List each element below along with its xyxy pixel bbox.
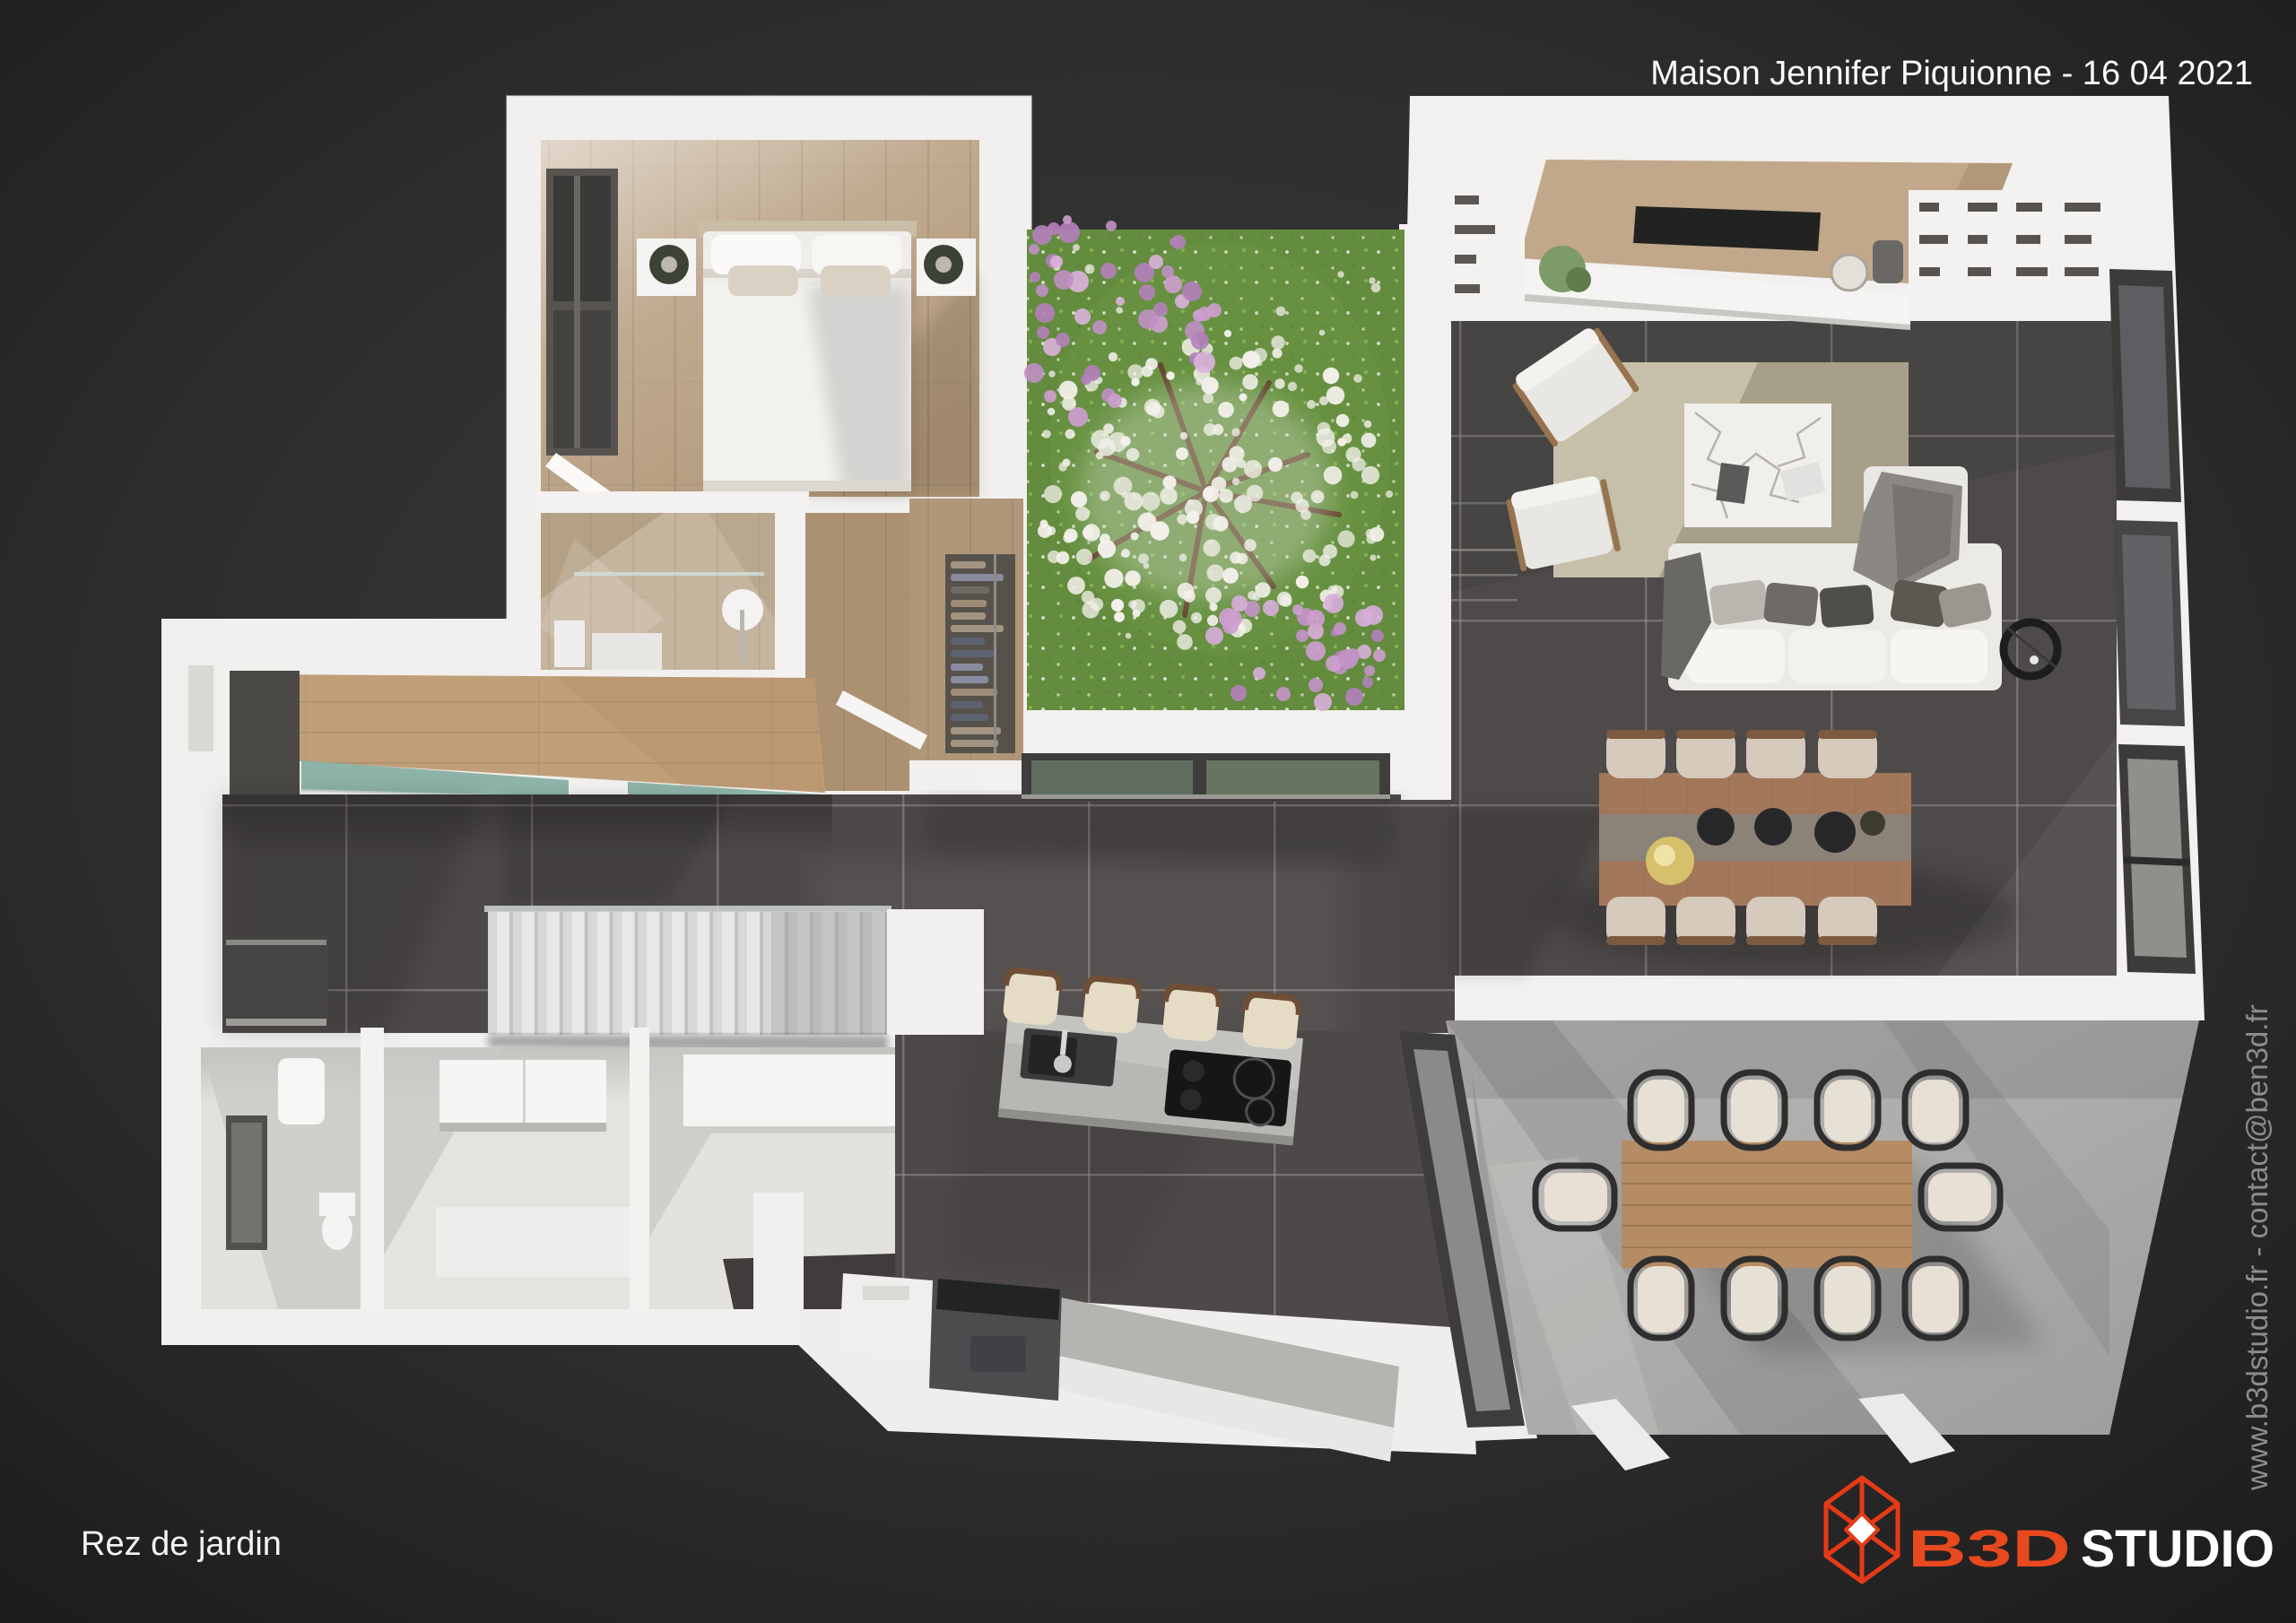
svg-text:Rez de jardin: Rez de jardin (81, 1525, 282, 1563)
svg-text:Maison Jennifer Piquionne - 16: Maison Jennifer Piquionne - 16 04 2021 (1650, 55, 2253, 92)
svg-text:STUDIO: STUDIO (2081, 1520, 2274, 1578)
svg-text:B3D: B3D (1908, 1520, 2071, 1578)
svg-text:www.b3dstudio.fr - contact@ben: www.b3dstudio.fr - contact@ben3d.fr (2240, 1004, 2274, 1491)
